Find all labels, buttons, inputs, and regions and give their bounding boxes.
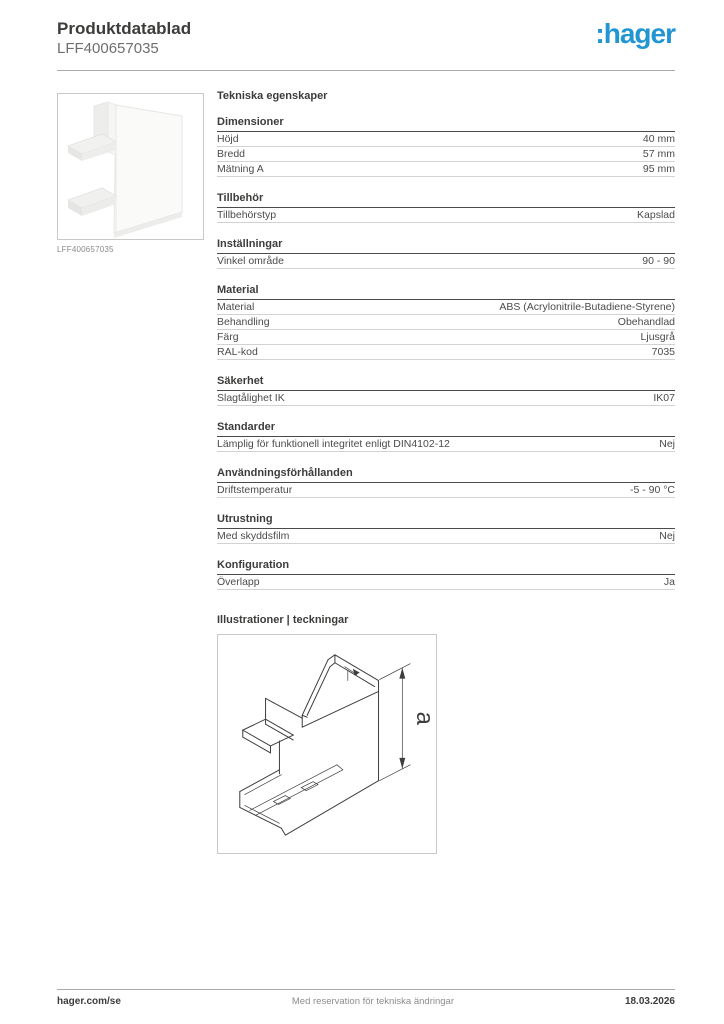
spec-row: Slagtålighet IKIK07 bbox=[217, 391, 675, 406]
hager-logo: :hager bbox=[595, 19, 675, 49]
tech-properties-heading: Tekniska egenskaper bbox=[217, 90, 675, 102]
spec-label: Vinkel område bbox=[217, 256, 284, 267]
dimension-a-label: a bbox=[411, 712, 436, 726]
spec-section-title: Tillbehör bbox=[217, 192, 675, 208]
technical-drawing-flat-angle: a bbox=[218, 635, 436, 853]
spec-value: 57 mm bbox=[633, 149, 675, 160]
footer-website-link[interactable]: hager.com/se bbox=[57, 996, 121, 1007]
spec-section: UtrustningMed skyddsfilmNej bbox=[217, 513, 675, 544]
spec-section: TillbehörTillbehörstypKapslad bbox=[217, 192, 675, 223]
spec-row: Bredd57 mm bbox=[217, 147, 675, 162]
product-reference: LFF400657035 bbox=[57, 39, 675, 58]
spec-value: IK07 bbox=[643, 393, 675, 404]
spec-label: Bredd bbox=[217, 149, 245, 160]
spec-row: Höjd40 mm bbox=[217, 132, 675, 147]
spec-value: 95 mm bbox=[633, 164, 675, 175]
spec-section-title: Utrustning bbox=[217, 513, 675, 529]
spec-section: AnvändningsförhållandenDriftstemperatur-… bbox=[217, 467, 675, 498]
spec-section-title: Användningsförhållanden bbox=[217, 467, 675, 483]
spec-row: MaterialABS (Acrylonitrile-Butadiene-Sty… bbox=[217, 300, 675, 315]
technical-properties: Tekniska egenskaper DimensionerHöjd40 mm… bbox=[217, 90, 675, 854]
product-photo-caption: LFF400657035 bbox=[57, 245, 204, 254]
spec-label: Färg bbox=[217, 332, 239, 343]
product-photo-frame bbox=[57, 93, 204, 240]
spec-section: SäkerhetSlagtålighet IKIK07 bbox=[217, 375, 675, 406]
spec-value: Kapslad bbox=[627, 210, 675, 221]
spec-row: BehandlingObehandlad bbox=[217, 315, 675, 330]
spec-label: RAL-kod bbox=[217, 347, 258, 358]
illustrations-heading: Illustrationer | teckningar bbox=[217, 614, 675, 626]
footer-date: 18.03.2026 bbox=[625, 996, 675, 1007]
product-figure: LFF400657035 bbox=[57, 93, 204, 254]
spec-value: Obehandlad bbox=[608, 317, 675, 328]
spec-value: Nej bbox=[649, 439, 675, 450]
spec-row: Med skyddsfilmNej bbox=[217, 529, 675, 544]
product-photo-flat-angle bbox=[58, 94, 203, 239]
spec-row: Mätning A95 mm bbox=[217, 162, 675, 177]
spec-row: ÖverlappJa bbox=[217, 575, 675, 590]
spec-section-title: Standarder bbox=[217, 421, 675, 437]
spec-label: Tillbehörstyp bbox=[217, 210, 276, 221]
spec-label: Material bbox=[217, 302, 254, 313]
spec-row: RAL-kod7035 bbox=[217, 345, 675, 360]
spec-value: ABS (Acrylonitrile-Butadiene-Styrene) bbox=[489, 302, 675, 313]
spec-label: Överlapp bbox=[217, 577, 260, 588]
spec-value: Ljusgrå bbox=[631, 332, 675, 343]
spec-row: Driftstemperatur-5 - 90 °C bbox=[217, 483, 675, 498]
footer-disclaimer: Med reservation för tekniska ändringar bbox=[292, 996, 454, 1007]
page-title: Produktdatablad bbox=[57, 19, 675, 39]
spec-value: 7035 bbox=[642, 347, 675, 358]
spec-section: StandarderLämplig för funktionell integr… bbox=[217, 421, 675, 452]
spec-label: Behandling bbox=[217, 317, 270, 328]
spec-section: KonfigurationÖverlappJa bbox=[217, 559, 675, 590]
spec-section-title: Material bbox=[217, 284, 675, 300]
spec-label: Slagtålighet IK bbox=[217, 393, 285, 404]
spec-label: Mätning A bbox=[217, 164, 264, 175]
spec-row: FärgLjusgrå bbox=[217, 330, 675, 345]
spec-section: MaterialMaterialABS (Acrylonitrile-Butad… bbox=[217, 284, 675, 360]
spec-section: InställningarVinkel område90 - 90 bbox=[217, 238, 675, 269]
header: Produktdatablad LFF400657035 :hager bbox=[57, 19, 675, 58]
spec-label: Lämplig för funktionell integritet enlig… bbox=[217, 439, 450, 450]
spec-sections: DimensionerHöjd40 mmBredd57 mmMätning A9… bbox=[217, 116, 675, 590]
spec-row: Vinkel område90 - 90 bbox=[217, 254, 675, 269]
header-divider bbox=[57, 70, 675, 71]
spec-value: Nej bbox=[649, 531, 675, 542]
spec-label: Med skyddsfilm bbox=[217, 531, 289, 542]
spec-section-title: Säkerhet bbox=[217, 375, 675, 391]
spec-row: Lämplig för funktionell integritet enlig… bbox=[217, 437, 675, 452]
spec-section-title: Konfiguration bbox=[217, 559, 675, 575]
spec-value: -5 - 90 °C bbox=[620, 485, 675, 496]
spec-row: TillbehörstypKapslad bbox=[217, 208, 675, 223]
spec-label: Driftstemperatur bbox=[217, 485, 292, 496]
footer: hager.com/se Med reservation för teknisk… bbox=[57, 996, 675, 1007]
technical-drawing-frame: a bbox=[217, 634, 437, 854]
spec-section-title: Dimensioner bbox=[217, 116, 675, 132]
spec-value: Ja bbox=[654, 577, 675, 588]
spec-section-title: Inställningar bbox=[217, 238, 675, 254]
spec-value: 40 mm bbox=[633, 134, 675, 145]
spec-label: Höjd bbox=[217, 134, 239, 145]
spec-section: DimensionerHöjd40 mmBredd57 mmMätning A9… bbox=[217, 116, 675, 177]
spec-value: 90 - 90 bbox=[632, 256, 675, 267]
datasheet-page: Produktdatablad LFF400657035 :hager bbox=[0, 0, 724, 1024]
footer-divider bbox=[57, 989, 675, 990]
